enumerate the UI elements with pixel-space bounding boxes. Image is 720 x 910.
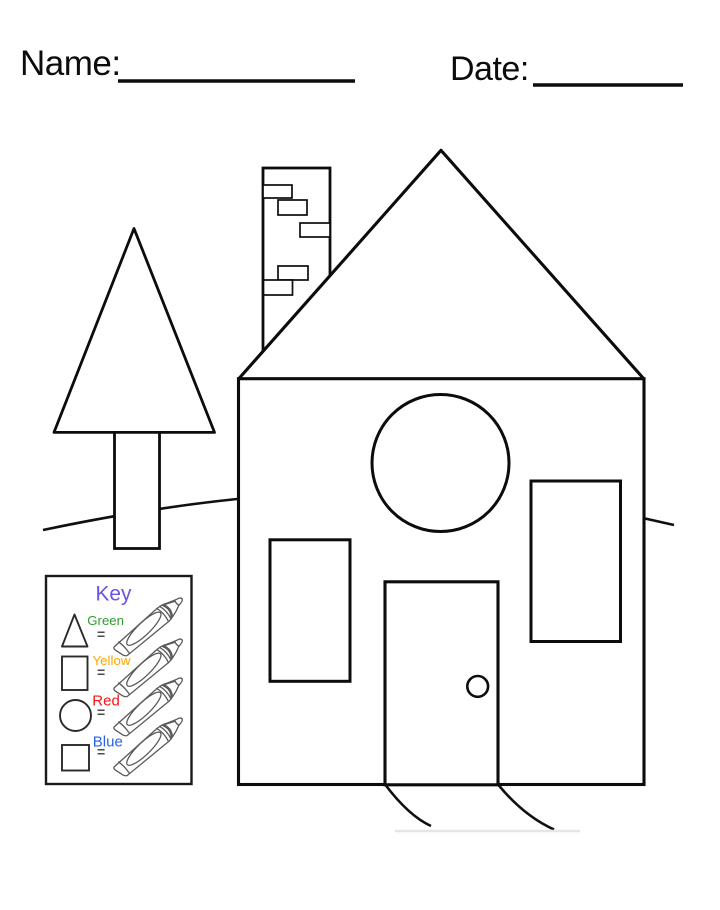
svg-text:=: =	[97, 626, 105, 642]
svg-text:Key: Key	[96, 582, 132, 605]
svg-text:=: =	[97, 744, 105, 760]
svg-text:Name:: Name:	[20, 44, 121, 83]
svg-text:=: =	[97, 704, 105, 720]
svg-text:Green: Green	[87, 613, 124, 628]
svg-text:Date:: Date:	[450, 50, 529, 88]
svg-text:=: =	[97, 664, 105, 680]
